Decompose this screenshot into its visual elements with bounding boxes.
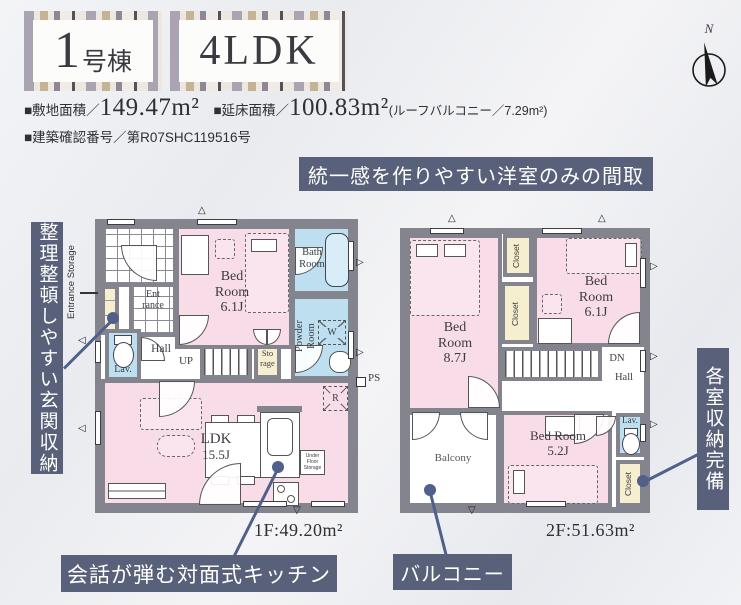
vent-icon: ▷ <box>650 420 658 430</box>
window <box>430 228 464 234</box>
layout-box: 4LDK <box>170 11 348 91</box>
burner-icon <box>287 495 295 503</box>
washer-icon: W <box>318 320 346 345</box>
site-area-value: 149.47m² <box>100 94 200 122</box>
ps-label: PS <box>368 372 380 384</box>
dn-label: DN <box>602 353 632 365</box>
closet-b-label: Closet <box>511 294 523 334</box>
window <box>526 501 566 507</box>
layout-inner: 4LDK <box>179 20 339 82</box>
roof-balcony-note: (ルーフバルコニー／7.29m²) <box>389 100 548 119</box>
stairs-down <box>501 347 602 381</box>
window <box>348 331 354 359</box>
floor2-plan: Bed Room 8.7J Closet Closet Bed Room 6.1… <box>400 228 650 513</box>
window <box>95 411 101 445</box>
banner-kitchen: 会話が弾む対面式キッチン <box>61 555 337 592</box>
flyer-page: 1 号棟 4LDK ■敷地面積／ 149.47m² ■延床面積／ 100.83m… <box>0 0 741 605</box>
entrance-label: Ent rance <box>127 289 179 311</box>
building-number: 1 <box>54 25 80 77</box>
chair-2f-61 <box>542 294 562 314</box>
building-suffix: 号棟 <box>82 42 132 78</box>
lav-label-2f: Lav. <box>615 415 645 425</box>
lav-label-1f: Lav. <box>103 364 143 375</box>
entrance-storage-tick <box>80 292 98 294</box>
hall-label-1f: Hall <box>141 343 181 356</box>
vent-icon: ◁ <box>78 424 86 434</box>
window <box>197 219 237 225</box>
site-area-label: ■敷地面積／ <box>24 99 100 119</box>
vent-icon: ▷ <box>650 352 658 362</box>
banner-right: 各室収納完備 <box>697 348 729 510</box>
window <box>243 501 287 507</box>
vent-icon: ▷ <box>356 348 364 358</box>
desk-2f-61 <box>538 318 572 344</box>
window <box>542 228 582 234</box>
window <box>348 241 354 271</box>
vent-icon: ▽ <box>468 506 476 516</box>
hall-label-2f: Hall <box>606 372 642 384</box>
compass: N <box>684 20 734 100</box>
banner-balcony: バルコニー <box>393 554 512 590</box>
closet-a-label: Closet <box>512 236 524 276</box>
closet-c-label: Closet <box>624 464 636 504</box>
bedroom52-label: Bed Room 5.2J <box>528 429 588 458</box>
chair-1f <box>215 239 235 259</box>
bedroom61-2f-label: Bed Room 6.1J <box>566 274 626 321</box>
window <box>95 341 101 363</box>
floor-area-value: 100.83m² <box>289 94 389 122</box>
fridge-space-icon: R <box>323 386 348 411</box>
connector-dot-balcony <box>424 484 436 496</box>
confirmation-number: ■建築確認番号／第R07SHC119516号 <box>24 126 251 146</box>
pillow <box>444 244 466 257</box>
vent-icon: ▽ <box>293 506 301 516</box>
compass-north-label: N <box>705 21 714 36</box>
up-label: UP <box>173 355 199 367</box>
bathroom-label: Bath Room <box>292 247 332 271</box>
balcony-label: Balcony <box>418 452 488 464</box>
tv-board <box>108 483 166 499</box>
ps-box <box>356 377 366 387</box>
window <box>107 219 135 225</box>
building-number-box: 1 号棟 <box>24 11 162 91</box>
area-info-line: ■敷地面積／ 149.47m² ■延床面積／ 100.83m² (ルーフバルコニ… <box>24 94 547 122</box>
bedroom61-1f-label: Bed Room 6.1J <box>202 269 262 316</box>
burner-icon <box>277 485 285 493</box>
pillow-1f <box>251 239 277 252</box>
entrance-storage-caption: Entrance Storage <box>66 222 77 342</box>
window <box>311 501 345 507</box>
pillow <box>625 243 637 267</box>
building-number-inner: 1 号棟 <box>33 20 153 82</box>
window <box>640 258 646 288</box>
connector-dot-entrance <box>107 312 119 324</box>
banner-top: 統一感を作りやすい洋室のみの間取 <box>299 157 653 191</box>
vent-icon: △ <box>598 214 606 224</box>
window <box>640 424 646 442</box>
vent-icon: △ <box>448 214 456 224</box>
door-arc <box>596 416 616 436</box>
storage-label: Sto rage <box>253 349 282 368</box>
pillow <box>513 470 525 494</box>
connector-dot-kitchen <box>272 461 284 473</box>
floor-area-label: ■延床面積／ <box>213 99 289 119</box>
stairs-up <box>200 345 252 379</box>
floor2-area-label: 2F:51.63m² <box>546 520 635 541</box>
bedroom87-label: Bed Room 8.7J <box>425 320 485 367</box>
ldk-label: LDK 15.5J <box>181 431 251 462</box>
window <box>640 350 646 372</box>
compass-icon <box>684 38 734 100</box>
layout-label: 4LDK <box>199 27 318 75</box>
kitchen-sink <box>267 418 293 456</box>
connector-closet <box>642 452 700 484</box>
pillow <box>416 244 438 257</box>
vent-icon: △ <box>198 206 206 216</box>
floor1-plan: Ent rance Lav. Hall Bed Room 6.1J Bath R… <box>95 219 358 513</box>
floor1-area-label: 1F:49.20m² <box>254 520 343 541</box>
vent-icon: ▷ <box>356 258 364 268</box>
connector-dot-closet <box>637 475 649 487</box>
vent-icon: ▷ <box>650 262 658 272</box>
under-floor-storage: Under Floor Storage <box>300 450 325 475</box>
toilet-icon-2f <box>622 433 640 455</box>
powder-room-label: Powder Room <box>294 306 320 366</box>
banner-left: 整理整頓しやすい玄関収納 <box>31 222 63 474</box>
